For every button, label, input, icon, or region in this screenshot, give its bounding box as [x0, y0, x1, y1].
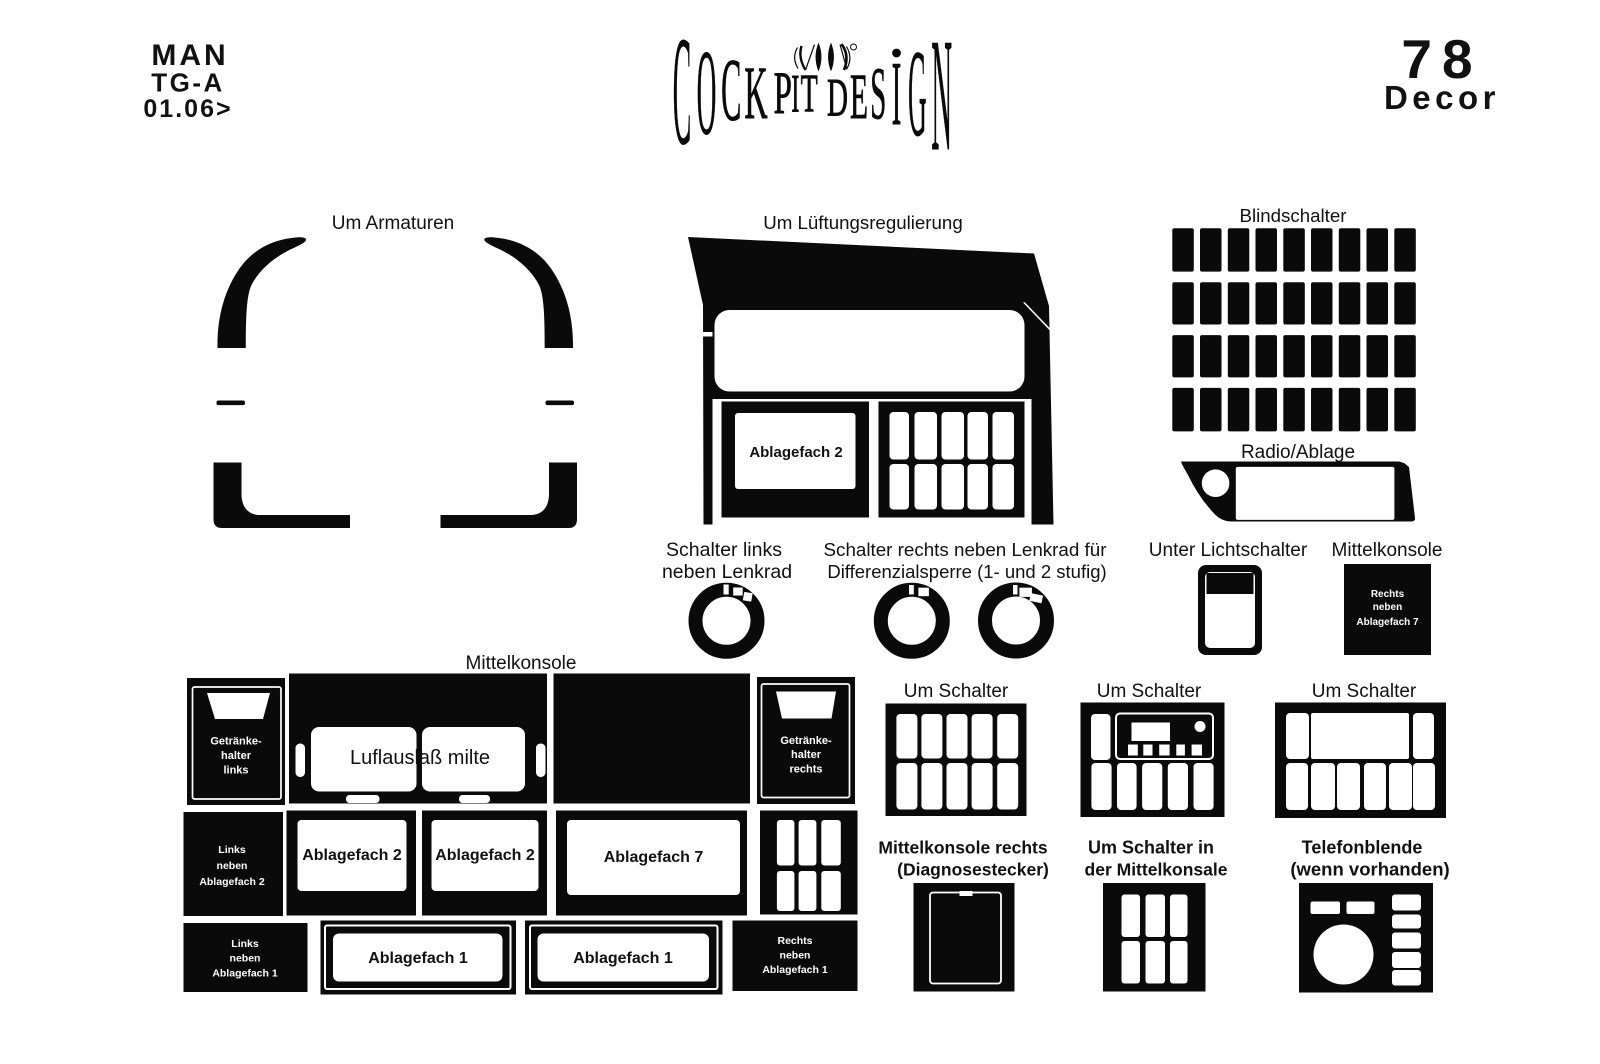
svg-text:Um Schalter: Um Schalter: [1312, 681, 1417, 702]
svg-text:Ablagefach 2: Ablagefach 2: [435, 847, 535, 864]
svg-text:K: K: [744, 50, 767, 135]
svg-text:G: G: [908, 26, 926, 163]
svg-text:Ablagefach 1: Ablagefach 1: [212, 968, 278, 980]
svg-text:Blindschalter: Blindschalter: [1240, 205, 1347, 226]
svg-text:Um Schalter: Um Schalter: [904, 681, 1009, 702]
svg-text:halter: halter: [221, 750, 252, 762]
svg-text:der Mittelkonsale: der Mittelkonsale: [1085, 860, 1228, 880]
svg-text:neben: neben: [1373, 602, 1402, 613]
svg-text:(wenn vorhanden): (wenn vorhanden): [1290, 859, 1449, 880]
svg-text:P: P: [774, 60, 792, 127]
svg-text:E: E: [850, 60, 868, 132]
svg-text:I: I: [791, 65, 799, 125]
svg-text:neben: neben: [780, 950, 811, 962]
svg-text:I: I: [892, 43, 902, 144]
svg-text:Ablagefach 1: Ablagefach 1: [762, 964, 828, 976]
svg-text:rechts: rechts: [789, 764, 822, 776]
svg-text:(Diagnosestecker): (Diagnosestecker): [897, 860, 1049, 880]
svg-text:Getränke-: Getränke-: [780, 735, 832, 747]
svg-text:Decor: Decor: [1384, 79, 1500, 116]
svg-text:Ablagefach 1: Ablagefach 1: [573, 950, 673, 967]
svg-text:D: D: [827, 68, 848, 128]
svg-text:Differenzialsperre (1- und 2 s: Differenzialsperre (1- und 2 stufig): [827, 561, 1106, 582]
svg-text:Mittelkonsole rechts: Mittelkonsole rechts: [878, 838, 1047, 858]
svg-text:Luflauslaß milte: Luflauslaß milte: [350, 747, 490, 769]
svg-text:S: S: [870, 54, 886, 136]
svg-text:neben: neben: [230, 953, 261, 965]
svg-text:Schalter rechts neben Lenkrad: Schalter rechts neben Lenkrad für: [824, 539, 1107, 560]
svg-text:neben Lenkrad: neben Lenkrad: [662, 561, 792, 583]
svg-text:Um Armaturen: Um Armaturen: [332, 213, 454, 234]
svg-text:halter: halter: [791, 749, 822, 761]
svg-text:Mittelkonsole: Mittelkonsole: [466, 653, 577, 674]
svg-text:Radio/Ablage: Radio/Ablage: [1241, 442, 1355, 463]
svg-text:C: C: [673, 5, 691, 178]
svg-text:N: N: [931, 7, 952, 185]
svg-text:TG-A: TG-A: [151, 68, 225, 98]
svg-text:Um Schalter in: Um Schalter in: [1088, 838, 1214, 858]
svg-text:Ablagefach 1: Ablagefach 1: [368, 950, 468, 967]
svg-text:Schalter links: Schalter links: [666, 539, 782, 561]
svg-text:Mittelkonsole: Mittelkonsole: [1332, 540, 1443, 561]
svg-text:O: O: [697, 26, 717, 161]
svg-text:Links: Links: [231, 938, 259, 950]
svg-text:neben: neben: [217, 860, 248, 872]
svg-text:links: links: [223, 765, 248, 777]
svg-text:Ablagefach 2: Ablagefach 2: [302, 847, 402, 864]
svg-text:Rechts: Rechts: [777, 935, 812, 947]
svg-text:C: C: [721, 42, 741, 140]
svg-text:Rechts: Rechts: [1371, 589, 1405, 600]
svg-text:Ablagefach 7: Ablagefach 7: [1356, 617, 1419, 628]
svg-text:T: T: [801, 63, 818, 123]
svg-text:Um Lüftungsregulierung: Um Lüftungsregulierung: [763, 212, 962, 233]
svg-text:Telefonblende: Telefonblende: [1302, 838, 1423, 858]
svg-text:Getränke-: Getränke-: [210, 736, 262, 748]
svg-text:Ablagefach 2: Ablagefach 2: [749, 444, 842, 461]
svg-text:Links: Links: [218, 844, 246, 856]
svg-text:Ablagefach 2: Ablagefach 2: [199, 876, 265, 888]
svg-text:Ablagefach 7: Ablagefach 7: [604, 849, 704, 866]
svg-text:Um Schalter: Um Schalter: [1097, 681, 1202, 702]
svg-text:01.06>: 01.06>: [143, 95, 232, 123]
svg-text:Unter Lichtschalter: Unter Lichtschalter: [1149, 540, 1308, 561]
